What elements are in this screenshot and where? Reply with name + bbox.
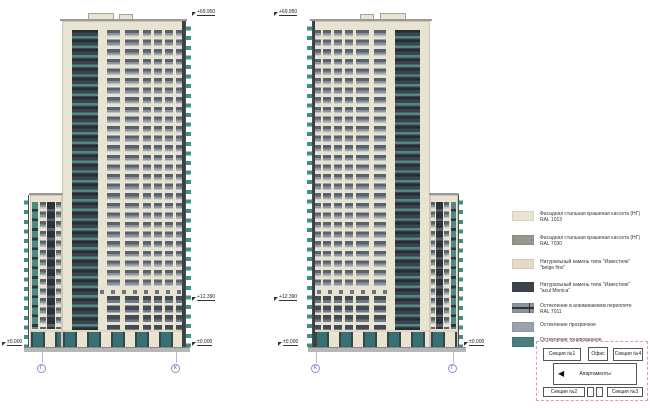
elevation-mark-zero: ±0.000 [278, 339, 298, 346]
level-value: +69.950 [279, 9, 297, 16]
window-strip-lower [323, 296, 331, 330]
keyplan-stair-box [587, 387, 594, 397]
key-plan: Секция №1 Офис Секция №4 ◀ Апартаменты С… [536, 341, 648, 401]
keyplan-section-1: Секция №1 [543, 348, 581, 361]
axis-circle: К [311, 364, 320, 373]
glazing-accent-strip [451, 202, 456, 329]
level-mark-icon [464, 342, 468, 346]
facade-elevation-sheet: +69.950 +12.390 ±0.000 ±0.000 Г К [0, 0, 650, 408]
legend-item: Остекление в алюминиевом переплетеRAL 70… [512, 303, 632, 315]
elevation-mark-mid: +12.390 [192, 294, 215, 301]
level-mark-icon [274, 297, 278, 301]
floor-level-ticks [458, 195, 463, 347]
legend-label: Натуральный камень типа "Известняк""azul… [540, 282, 630, 294]
axis-line [453, 352, 454, 363]
level-mark-icon [278, 342, 282, 346]
level-value: ±0.000 [7, 339, 22, 346]
level-value: ±0.000 [197, 339, 212, 346]
elevation-mark-mid: +12.390 [274, 294, 297, 301]
axis-circle: Г [448, 364, 457, 373]
mullion-line [512, 307, 534, 309]
window-strip-lower [334, 296, 342, 330]
legend-swatch [512, 322, 534, 332]
stone-strip [436, 202, 443, 329]
level-mark-icon [192, 297, 196, 301]
window-strip-lower [374, 296, 386, 330]
legend-swatch [512, 211, 534, 221]
window-strip-lower [315, 296, 321, 330]
legend-swatch [512, 303, 534, 313]
window-strip-lower [107, 296, 120, 330]
building-base [308, 347, 466, 352]
window-strip [431, 202, 435, 329]
window-strip [334, 30, 342, 288]
elevation-mark-zero: ±0.000 [192, 339, 212, 346]
legend-item: Остекление прозрачное [512, 322, 596, 332]
keyplan-section-2: Секция №2 [543, 387, 585, 397]
stone-strip [47, 202, 55, 329]
floor-level-ticks [24, 195, 29, 347]
balcony-glazing-strip [395, 30, 420, 330]
window-strip [323, 30, 331, 288]
window-strip-lower [165, 296, 173, 330]
floor-level-ticks [185, 21, 191, 347]
level-value: +12.390 [279, 294, 297, 301]
elevation-mark-top: +69.950 [274, 9, 297, 16]
elevation-mark-zero: ±0.000 [2, 339, 22, 346]
axis-circle: К [171, 364, 180, 373]
building-base [24, 347, 190, 352]
level-mark-icon [192, 342, 196, 346]
axis-line [42, 352, 43, 363]
window-strip [40, 202, 46, 329]
legend-label: Остекление прозрачное [540, 322, 596, 332]
keyplan-office: Офис [588, 347, 608, 361]
legend-swatch [512, 235, 534, 245]
legend-item: Натуральный камень типа "Известняк""beig… [512, 259, 630, 271]
elevation-mark-top: +69.950 [192, 9, 215, 16]
axis-line [316, 352, 317, 363]
window-strip-lower [356, 296, 369, 330]
legend-swatch [512, 259, 534, 269]
legend-label: Фасадная стальная крашеная кассета (НГ)R… [540, 235, 640, 247]
window-strip [444, 202, 449, 329]
legend-swatch [512, 282, 534, 292]
window-strip-lower [345, 296, 353, 330]
window-strip [356, 30, 369, 288]
window-strip [154, 30, 162, 288]
level-mark-icon [192, 12, 196, 16]
window-strip [143, 30, 151, 288]
floor-level-ticks [307, 21, 313, 347]
keyplan-section-4: Секция №4 [613, 348, 643, 361]
level-value: ±0.000 [469, 339, 484, 346]
window-strip [165, 30, 173, 288]
legend-item: Фасадная стальная крашеная кассета (НГ)R… [512, 235, 640, 247]
wing-facade [30, 195, 62, 347]
mullion-line [529, 303, 531, 313]
keyplan-apartments: ◀ Апартаменты [553, 363, 637, 385]
axis-circle: Г [37, 364, 46, 373]
storefront-glazing [431, 330, 457, 347]
tech-floor-band [98, 288, 185, 296]
legend-item: Натуральный камень типа "Известняк""azul… [512, 282, 630, 294]
window-strip [374, 30, 386, 288]
level-mark-icon [274, 12, 278, 16]
window-strip [345, 30, 353, 288]
window-strip-lower [143, 296, 151, 330]
legend-label: Остекление в алюминиевом переплетеRAL 70… [540, 303, 632, 315]
window-strip-lower [125, 296, 139, 330]
glazing-accent-strip [32, 202, 38, 329]
window-strip [125, 30, 139, 288]
storefront-glazing [315, 330, 429, 347]
storefront-glazing [31, 330, 61, 347]
axis-line [176, 352, 177, 363]
elevation-mark-zero: ±0.000 [464, 339, 484, 346]
level-value: ±0.000 [283, 339, 298, 346]
window-strip [107, 30, 120, 288]
wing-facade [430, 195, 458, 347]
keyplan-stair-box [596, 387, 603, 397]
keyplan-apartments-label: Апартаменты [579, 372, 610, 377]
tech-floor-band [315, 288, 395, 296]
legend-label: Натуральный камень типа "Известняк""beig… [540, 259, 630, 271]
storefront-glazing [63, 330, 184, 347]
window-strip [56, 202, 61, 329]
legend-label: Фасадная стальная крашеная кассета (НГ)R… [540, 211, 640, 223]
legend-item: Фасадная стальная крашеная кассета (НГ)R… [512, 211, 640, 223]
level-value: +69.950 [197, 9, 215, 16]
tower-facade [62, 21, 185, 347]
window-strip-lower [154, 296, 162, 330]
window-strip [315, 30, 321, 288]
level-value: +12.390 [197, 294, 215, 301]
balcony-glazing-strip [72, 30, 98, 330]
keyplan-section-3: Секция №3 [607, 387, 643, 397]
level-mark-icon [2, 342, 6, 346]
entrance-arrow-icon: ◀ [558, 370, 564, 378]
tower-facade [312, 21, 430, 347]
legend-swatch [512, 337, 534, 347]
